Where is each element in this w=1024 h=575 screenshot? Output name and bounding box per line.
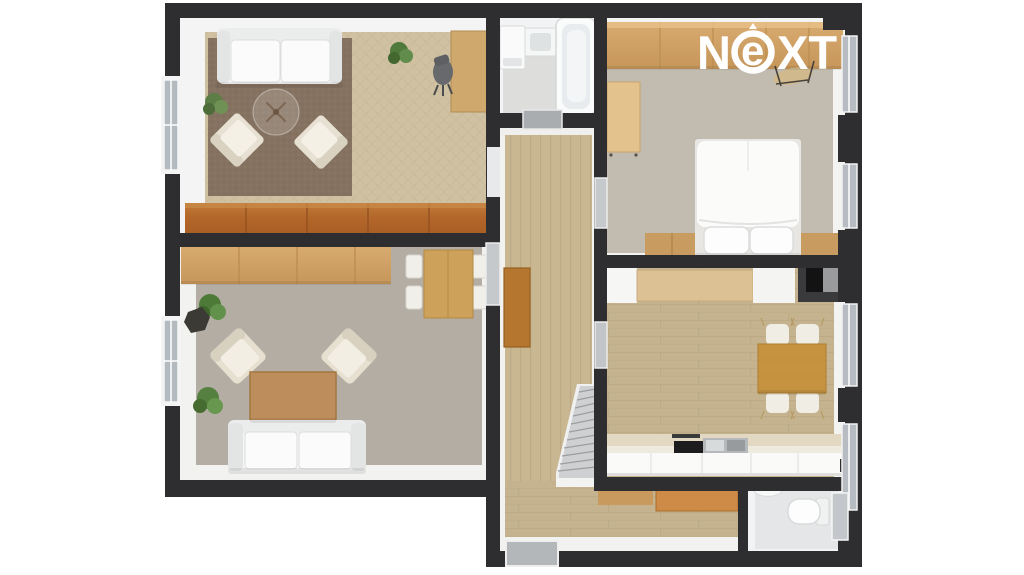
svg-text:N: N xyxy=(697,26,731,79)
svg-text:XT: XT xyxy=(777,26,837,79)
svg-text:e: e xyxy=(741,27,764,74)
